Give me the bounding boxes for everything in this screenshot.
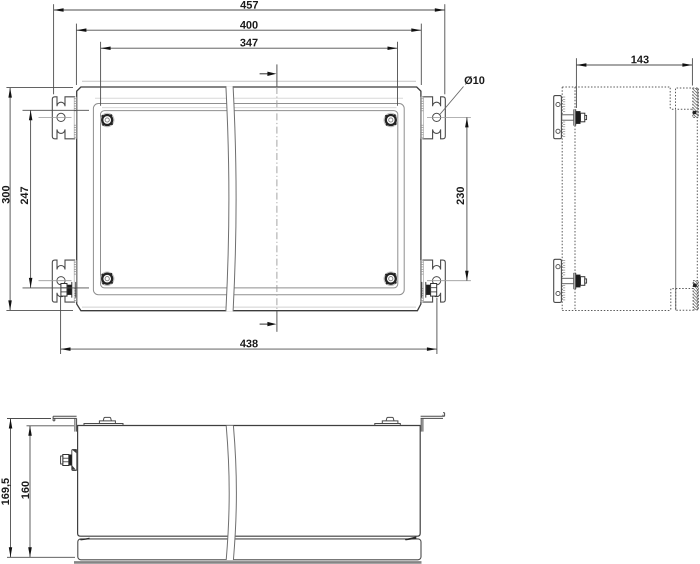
svg-text:230: 230 xyxy=(455,187,467,205)
svg-text:347: 347 xyxy=(240,37,258,49)
svg-text:169,5: 169,5 xyxy=(0,478,12,506)
svg-text:457: 457 xyxy=(240,0,258,12)
svg-text:300: 300 xyxy=(0,185,12,203)
svg-text:143: 143 xyxy=(631,54,649,66)
svg-text:Ø10: Ø10 xyxy=(464,75,485,87)
svg-text:247: 247 xyxy=(19,186,31,204)
svg-text:400: 400 xyxy=(240,20,258,32)
svg-text:438: 438 xyxy=(240,338,258,350)
svg-text:160: 160 xyxy=(20,481,32,499)
